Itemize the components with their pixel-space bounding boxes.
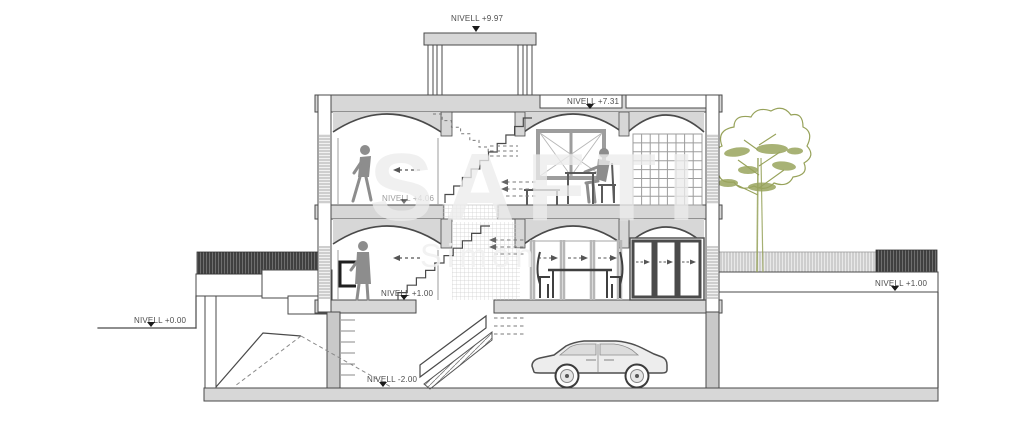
level-label-ground-floor: NIVELL +1.00 [381,289,433,298]
ground-slab-right [494,300,722,313]
stair-wall-hatch [452,222,520,300]
car-icon [532,341,667,388]
basement-level [216,316,667,389]
sliding-doors-dark [630,238,704,300]
dining-table [538,252,623,298]
chair-left [538,252,551,298]
basement-floor-slab [204,388,938,401]
tree-icon [712,108,811,272]
lattice-window [633,134,702,205]
door-arrow-left-upper [393,167,421,173]
tower-slab [424,33,536,45]
section-drawing: NIVELL +9.97 NIVELL +7.31 NIVELL +4.06 N… [0,0,1024,425]
level-label-street: NIVELL +0.00 [134,316,186,325]
right-ground [719,250,938,388]
driveway-ramp [216,333,301,387]
roof-parapet [626,95,719,108]
basement-retaining-wall [205,296,216,388]
slide-arrows-light [538,255,617,261]
walking-figure [353,145,371,201]
first-floor-slab-left [315,205,444,219]
level-label-garden-right: NIVELL +1.00 [875,279,927,288]
level-label-basement: NIVELL -2.00 [367,375,417,384]
right-fence-hatch [876,250,937,272]
level-label-roof-terrace: NIVELL +9.97 [451,14,503,23]
level-marker-icon [472,26,480,32]
architectural-section-screenshot: NIVELL +9.97 NIVELL +7.31 NIVELL +4.06 N… [0,0,1024,425]
window-x-brace [538,131,604,178]
first-floor-slab-right [498,205,722,219]
right-terrace-railing-hatch [719,252,876,272]
stair-tower [424,33,536,95]
basement-stair [420,316,492,389]
door-arrow-left-ground [393,255,421,261]
level-marker-icon [379,382,387,387]
level-label-first-floor: NIVELL +4.06 [382,194,434,203]
wall-ladder-rungs [341,320,355,375]
standing-figure [351,241,371,299]
upper-floor-vaults [333,112,704,136]
